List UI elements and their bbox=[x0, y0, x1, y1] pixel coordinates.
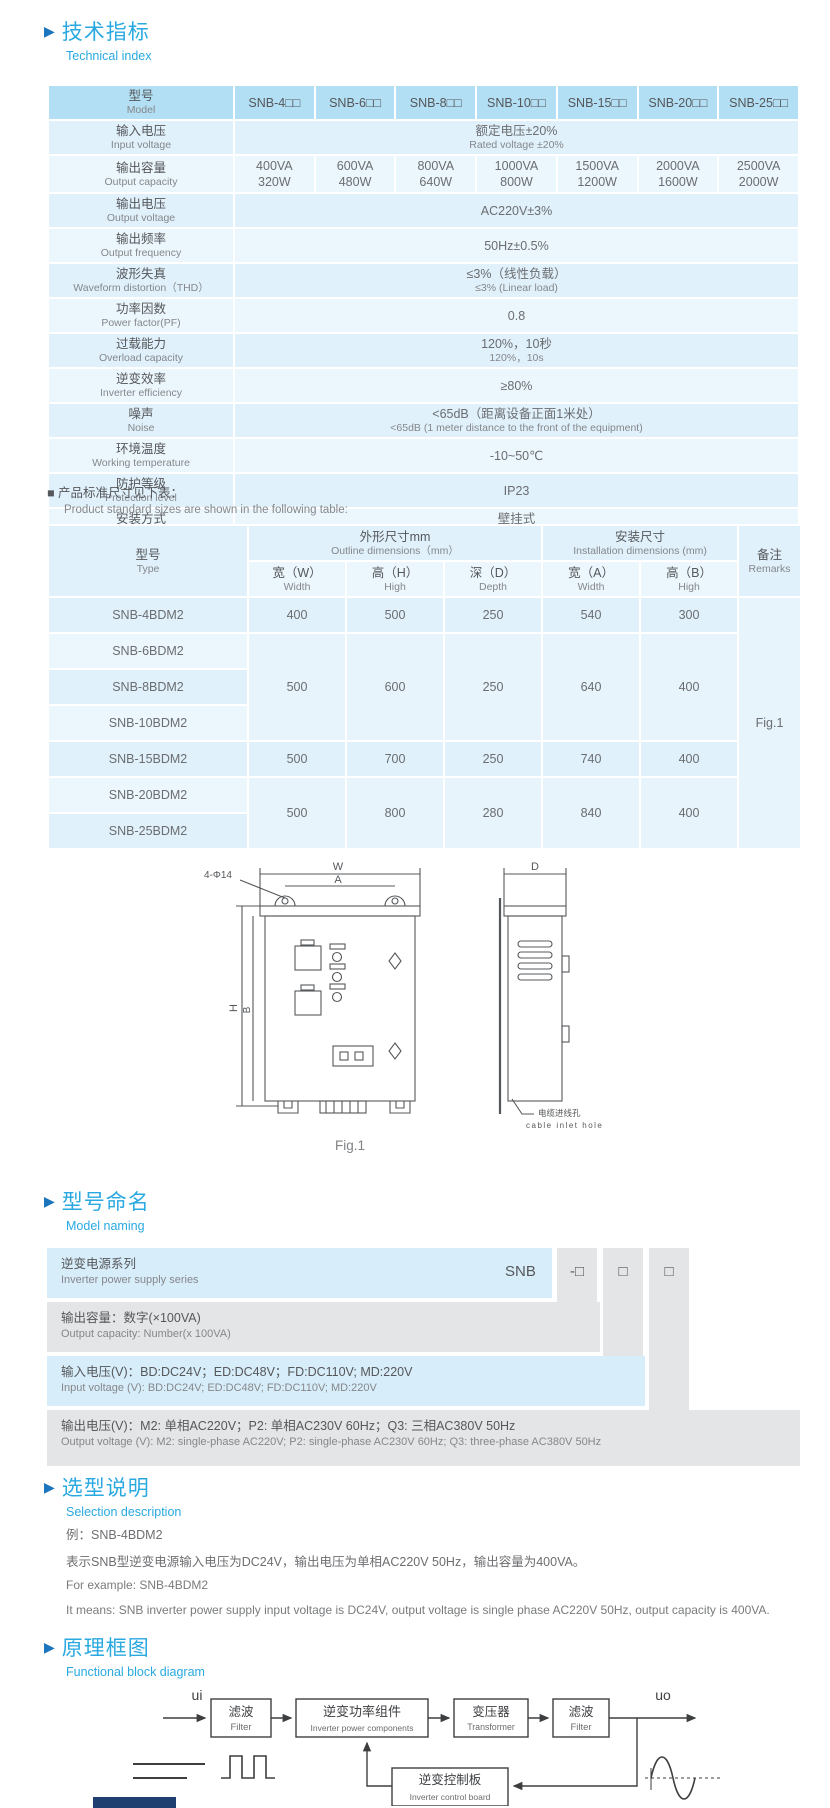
code-prefix: SNB bbox=[505, 1263, 536, 1280]
section-title-zh: 型号命名 bbox=[62, 1186, 150, 1216]
naming-row-zh: 输入电压(V)：BD:DC24V；ED:DC48V；FD:DC110V; MD:… bbox=[61, 1363, 645, 1381]
type-label-en: Type bbox=[50, 563, 246, 576]
row-value: 0.8 bbox=[234, 298, 799, 333]
model-label-en: Model bbox=[50, 104, 232, 117]
capacity-va: 1000VA bbox=[478, 158, 555, 174]
naming-row-capacity: 输出容量：数字(×100VA) Output capacity: Number(… bbox=[47, 1302, 600, 1352]
spec-row-noise: 噪声Noise <65dB（距离设备正面1米处）<65dB (1 meter d… bbox=[48, 403, 799, 438]
naming-row-input-voltage: 输入电压(V)：BD:DC24V；ED:DC48V；FD:DC110V; MD:… bbox=[47, 1356, 645, 1406]
selection-example-en: For example: SNB-4BDM2 bbox=[66, 1578, 208, 1592]
filter1-en: Filter bbox=[230, 1722, 251, 1733]
dim-w: 500 bbox=[248, 633, 346, 741]
row-value: AC220V±3% bbox=[234, 193, 799, 228]
model-col: SNB-8□□ bbox=[395, 85, 476, 120]
spec-row-working-temperature: 环境温度Working temperature -10~50℃ bbox=[48, 438, 799, 473]
row-label-en: Output frequency bbox=[50, 247, 232, 260]
remark-cell: Fig.1 bbox=[738, 597, 801, 849]
dim-d: 250 bbox=[444, 633, 542, 741]
remarks-label-zh: 备注 bbox=[740, 547, 799, 563]
model-name: SNB-20BDM2 bbox=[48, 777, 248, 813]
naming-row-en: Output capacity: Number(x 100VA) bbox=[61, 1327, 600, 1342]
cable-inlet-label-zh: 电缆进线孔 bbox=[538, 1108, 581, 1118]
row-label-zh: 波形失真 bbox=[50, 266, 232, 282]
output-label: uo bbox=[655, 1687, 671, 1703]
square-wave-icon bbox=[221, 1756, 275, 1778]
capacity-w: 1200W bbox=[559, 174, 636, 190]
capacity-va: 1500VA bbox=[559, 158, 636, 174]
row-label-zh: 过载能力 bbox=[50, 336, 232, 352]
spec-row-output-voltage: 输出电压Output voltage AC220V±3% bbox=[48, 193, 799, 228]
naming-row-series: 逆变电源系列 Inverter power supply series bbox=[47, 1248, 552, 1298]
outline-dims-zh: 外形尺寸mm bbox=[250, 529, 540, 545]
spec-row-output-capacity: 输出容量Output capacity 400VA320W 600VA480W … bbox=[48, 155, 799, 193]
dim-b: 300 bbox=[640, 597, 738, 633]
size-row: SNB-20BDM2 500 800 280 840 400 bbox=[48, 777, 801, 813]
capacity-va: 400VA bbox=[236, 158, 313, 174]
model-header-cell: 型号 Model bbox=[48, 85, 234, 120]
mounting-holes-label: 4-Φ14 bbox=[204, 870, 232, 881]
control-zh: 逆变控制板 bbox=[419, 1772, 482, 1787]
capacity-w: 800W bbox=[478, 174, 555, 190]
spec-row-waveform-distortion: 波形失真Waveform distortion（THD） ≤3%（线性负载）≤3… bbox=[48, 263, 799, 298]
row-label-zh: 输入电压 bbox=[50, 123, 232, 139]
size-row: SNB-4BDM2 400 500 250 540 300 Fig.1 bbox=[48, 597, 801, 633]
model-label-zh: 型号 bbox=[50, 88, 232, 104]
row-value-en: ≤3% (Linear load) bbox=[236, 282, 797, 295]
size-header-row1: 型号Type 外形尺寸mmOutline dimensions（mm） 安装尺寸… bbox=[48, 525, 801, 561]
dim-h: 500 bbox=[346, 597, 444, 633]
row-value: ≥80% bbox=[234, 368, 799, 403]
naming-row-zh: 输出电压(V)：M2: 单相AC220V；P2: 单相AC230V 60Hz；Q… bbox=[61, 1417, 800, 1435]
dimension-figure: W A D 4-Φ14 H B 电缆进线孔 cable inlet hole F… bbox=[190, 856, 630, 1156]
spec-row-power-factor: 功率因数Power factor(PF) 0.8 bbox=[48, 298, 799, 333]
naming-row-zh: 逆变电源系列 bbox=[61, 1255, 552, 1273]
inverter-en: Inverter power components bbox=[311, 1723, 414, 1733]
row-value: 50Hz±0.5% bbox=[234, 228, 799, 263]
figure-labels: W A D 4-Φ14 H B 电缆进线孔 cable inlet hole F… bbox=[204, 861, 603, 1153]
col-a-zh: 宽（A） bbox=[544, 565, 638, 581]
dim-d: 250 bbox=[444, 597, 542, 633]
section-arrow-icon: ▶ bbox=[44, 1480, 55, 1494]
selection-example-zh: 例：SNB-4BDM2 bbox=[66, 1524, 163, 1543]
spec-row-input-voltage: 输入电压Input voltage 额定电压±20%Rated voltage … bbox=[48, 120, 799, 155]
dim-a: 740 bbox=[542, 741, 640, 777]
dim-b: 400 bbox=[640, 777, 738, 849]
model-name: SNB-6BDM2 bbox=[48, 633, 248, 669]
model-col: SNB-15□□ bbox=[557, 85, 638, 120]
col-b-en: High bbox=[642, 581, 736, 594]
dim-a: 840 bbox=[542, 777, 640, 849]
row-value-zh: ≤3%（线性负载） bbox=[236, 266, 797, 282]
capacity-w: 2000W bbox=[720, 174, 797, 190]
section-technical-index: ▶ 技术指标 Technical index bbox=[44, 16, 151, 63]
model-naming-diagram: 逆变电源系列 Inverter power supply series 输出容量… bbox=[47, 1248, 800, 1466]
row-label-zh: 功率因数 bbox=[50, 301, 232, 317]
dim-a: 640 bbox=[542, 633, 640, 741]
size-note: ■ 产品标准尺寸见下表： Product standard sizes are … bbox=[47, 482, 348, 516]
type-label-zh: 型号 bbox=[50, 547, 246, 563]
size-note-en: Product standard sizes are shown in the … bbox=[64, 504, 348, 516]
code-box-1: -□ bbox=[557, 1263, 597, 1280]
side-view bbox=[500, 868, 569, 1114]
section-arrow-icon: ▶ bbox=[44, 24, 55, 38]
col-b-zh: 高（B） bbox=[642, 565, 736, 581]
section-arrow-icon: ▶ bbox=[44, 1194, 55, 1208]
row-label-zh: 逆变效率 bbox=[50, 371, 232, 387]
row-label-en: Power factor(PF) bbox=[50, 317, 232, 330]
dim-w: 400 bbox=[248, 597, 346, 633]
section-title-zh: 技术指标 bbox=[62, 16, 150, 46]
model-name: SNB-25BDM2 bbox=[48, 813, 248, 849]
dim-h: 800 bbox=[346, 777, 444, 849]
capacity-va: 2500VA bbox=[720, 158, 797, 174]
model-col: SNB-20□□ bbox=[638, 85, 719, 120]
row-value: -10~50℃ bbox=[234, 438, 799, 473]
capacity-va: 600VA bbox=[317, 158, 394, 174]
col-d-en: Depth bbox=[446, 581, 540, 594]
row-label-en: Waveform distortion（THD） bbox=[50, 282, 232, 295]
row-label-zh: 输出电压 bbox=[50, 196, 232, 212]
capacity-w: 320W bbox=[236, 174, 313, 190]
col-d-zh: 深（D） bbox=[446, 565, 540, 581]
model-col: SNB-10□□ bbox=[476, 85, 557, 120]
dim-h: 600 bbox=[346, 633, 444, 741]
row-label-en: Inverter efficiency bbox=[50, 387, 232, 400]
dim-label-b: B bbox=[242, 1006, 253, 1013]
row-label-en: Working temperature bbox=[50, 457, 232, 470]
dim-b: 400 bbox=[640, 633, 738, 741]
model-col: SNB-6□□ bbox=[315, 85, 396, 120]
front-view bbox=[236, 868, 420, 1113]
dim-h: 700 bbox=[346, 741, 444, 777]
dim-a: 540 bbox=[542, 597, 640, 633]
row-value-en: Rated voltage ±20% bbox=[236, 139, 797, 152]
table-header-row: 型号 Model SNB-4□□ SNB-6□□ SNB-8□□ SNB-10□… bbox=[48, 85, 799, 120]
row-label-zh: 环境温度 bbox=[50, 441, 232, 457]
filter2-en: Filter bbox=[570, 1722, 591, 1733]
row-label-en: Input voltage bbox=[50, 139, 232, 152]
section-selection-description: ▶ 选型说明 Selection description bbox=[44, 1472, 181, 1519]
naming-row-output-voltage: 输出电压(V)：M2: 单相AC220V；P2: 单相AC230V 60Hz；Q… bbox=[47, 1410, 800, 1466]
catalog-page: ▶ 技术指标 Technical index 型号 Model SNB-4□□ … bbox=[0, 0, 830, 1808]
row-label-en: Noise bbox=[50, 422, 232, 435]
transformer-zh: 变压器 bbox=[472, 1704, 510, 1719]
section-model-naming: ▶ 型号命名 Model naming bbox=[44, 1186, 150, 1233]
naming-row-zh: 输出容量：数字(×100VA) bbox=[61, 1309, 600, 1327]
naming-row-en: Input voltage (V): BD:DC24V; ED:DC48V; F… bbox=[61, 1381, 645, 1396]
code-box-3: □ bbox=[649, 1263, 689, 1280]
dim-d: 250 bbox=[444, 741, 542, 777]
spec-row-output-frequency: 输出频率Output frequency 50Hz±0.5% bbox=[48, 228, 799, 263]
section-title-en: Selection description bbox=[66, 1505, 181, 1519]
dim-w: 500 bbox=[248, 741, 346, 777]
dim-d: 280 bbox=[444, 777, 542, 849]
model-col: SNB-4□□ bbox=[234, 85, 315, 120]
dim-label-a: A bbox=[334, 874, 342, 886]
row-label-en: Output capacity bbox=[50, 176, 232, 189]
code-box-2: □ bbox=[603, 1263, 643, 1280]
col-a-en: Width bbox=[544, 581, 638, 594]
size-note-zh: ■ 产品标准尺寸见下表： bbox=[47, 482, 348, 501]
control-to-inverter-line bbox=[367, 1743, 392, 1786]
row-label-en: Output voltage bbox=[50, 212, 232, 225]
install-dims-en: Installation dimensions (mm) bbox=[544, 545, 736, 558]
figure-caption: Fig.1 bbox=[335, 1138, 365, 1153]
dim-label-d: D bbox=[531, 861, 539, 873]
row-value-en: 120%，10s bbox=[236, 352, 797, 365]
filter1-zh: 滤波 bbox=[228, 1705, 254, 1719]
col-w-en: Width bbox=[250, 581, 344, 594]
row-label-zh: 输出频率 bbox=[50, 231, 232, 247]
section-title-zh: 选型说明 bbox=[62, 1472, 150, 1502]
model-name: SNB-15BDM2 bbox=[48, 741, 248, 777]
technical-spec-table: 型号 Model SNB-4□□ SNB-6□□ SNB-8□□ SNB-10□… bbox=[47, 84, 800, 544]
row-value-en: <65dB (1 meter distance to the front of … bbox=[236, 422, 797, 435]
dim-label-w: W bbox=[333, 861, 344, 873]
cable-inlet-label-en: cable inlet hole bbox=[526, 1121, 603, 1130]
row-value-zh: <65dB（距离设备正面1米处） bbox=[236, 406, 797, 422]
capacity-va: 2000VA bbox=[640, 158, 717, 174]
dim-w: 500 bbox=[248, 777, 346, 849]
spec-row-inverter-efficiency: 逆变效率Inverter efficiency ≥80% bbox=[48, 368, 799, 403]
section-title-en: Model naming bbox=[66, 1219, 150, 1233]
section-title-zh: 原理框图 bbox=[62, 1632, 150, 1662]
size-row: SNB-15BDM2 500 700 250 740 400 bbox=[48, 741, 801, 777]
col-w-zh: 宽（W） bbox=[250, 565, 344, 581]
outline-dims-en: Outline dimensions（mm） bbox=[250, 545, 540, 558]
remarks-label-en: Remarks bbox=[740, 563, 799, 576]
model-col: SNB-25□□ bbox=[718, 85, 799, 120]
input-label: ui bbox=[192, 1687, 203, 1703]
capacity-w: 640W bbox=[397, 174, 474, 190]
naming-row-en: Output voltage (V): M2: single-phase AC2… bbox=[61, 1435, 800, 1450]
inverter-zh: 逆变功率组件 bbox=[323, 1704, 401, 1719]
capacity-w: 1600W bbox=[640, 174, 717, 190]
install-dims-zh: 安装尺寸 bbox=[544, 529, 736, 545]
dim-label-h: H bbox=[228, 1004, 240, 1012]
row-label-zh: 输出容量 bbox=[50, 160, 232, 176]
capacity-va: 800VA bbox=[397, 158, 474, 174]
transformer-en: Transformer bbox=[467, 1722, 515, 1732]
naming-row-en: Inverter power supply series bbox=[61, 1273, 552, 1288]
row-value-zh: 120%，10秒 bbox=[236, 336, 797, 352]
size-row: SNB-6BDM2 500 600 250 640 400 bbox=[48, 633, 801, 669]
model-name: SNB-4BDM2 bbox=[48, 597, 248, 633]
size-table: 型号Type 外形尺寸mmOutline dimensions（mm） 安装尺寸… bbox=[47, 524, 802, 850]
section-title-en: Technical index bbox=[66, 49, 151, 63]
control-en: Inverter control board bbox=[410, 1792, 491, 1802]
col-h-zh: 高（H） bbox=[348, 565, 442, 581]
col-h-en: High bbox=[348, 581, 442, 594]
row-value-zh: 额定电压±20% bbox=[236, 123, 797, 139]
selection-desc-en: It means: SNB inverter power supply inpu… bbox=[66, 1603, 770, 1617]
dim-b: 400 bbox=[640, 741, 738, 777]
spec-row-overload-capacity: 过载能力Overload capacity 120%，10秒120%，10s bbox=[48, 333, 799, 368]
section-arrow-icon: ▶ bbox=[44, 1640, 55, 1654]
selection-desc-zh: 表示SNB型逆变电源输入电压为DC24V，输出电压为单相AC220V 50Hz，… bbox=[66, 1551, 585, 1570]
row-label-en: Overload capacity bbox=[50, 352, 232, 365]
footer-decoration-bar bbox=[93, 1797, 176, 1808]
model-name: SNB-8BDM2 bbox=[48, 669, 248, 705]
row-label-zh: 噪声 bbox=[50, 406, 232, 422]
capacity-w: 480W bbox=[317, 174, 394, 190]
model-name: SNB-10BDM2 bbox=[48, 705, 248, 741]
functional-block-diagram: ui uo 滤波 Filter 逆变功率组件 Inverter power co… bbox=[105, 1672, 725, 1806]
filter2-zh: 滤波 bbox=[568, 1705, 594, 1719]
